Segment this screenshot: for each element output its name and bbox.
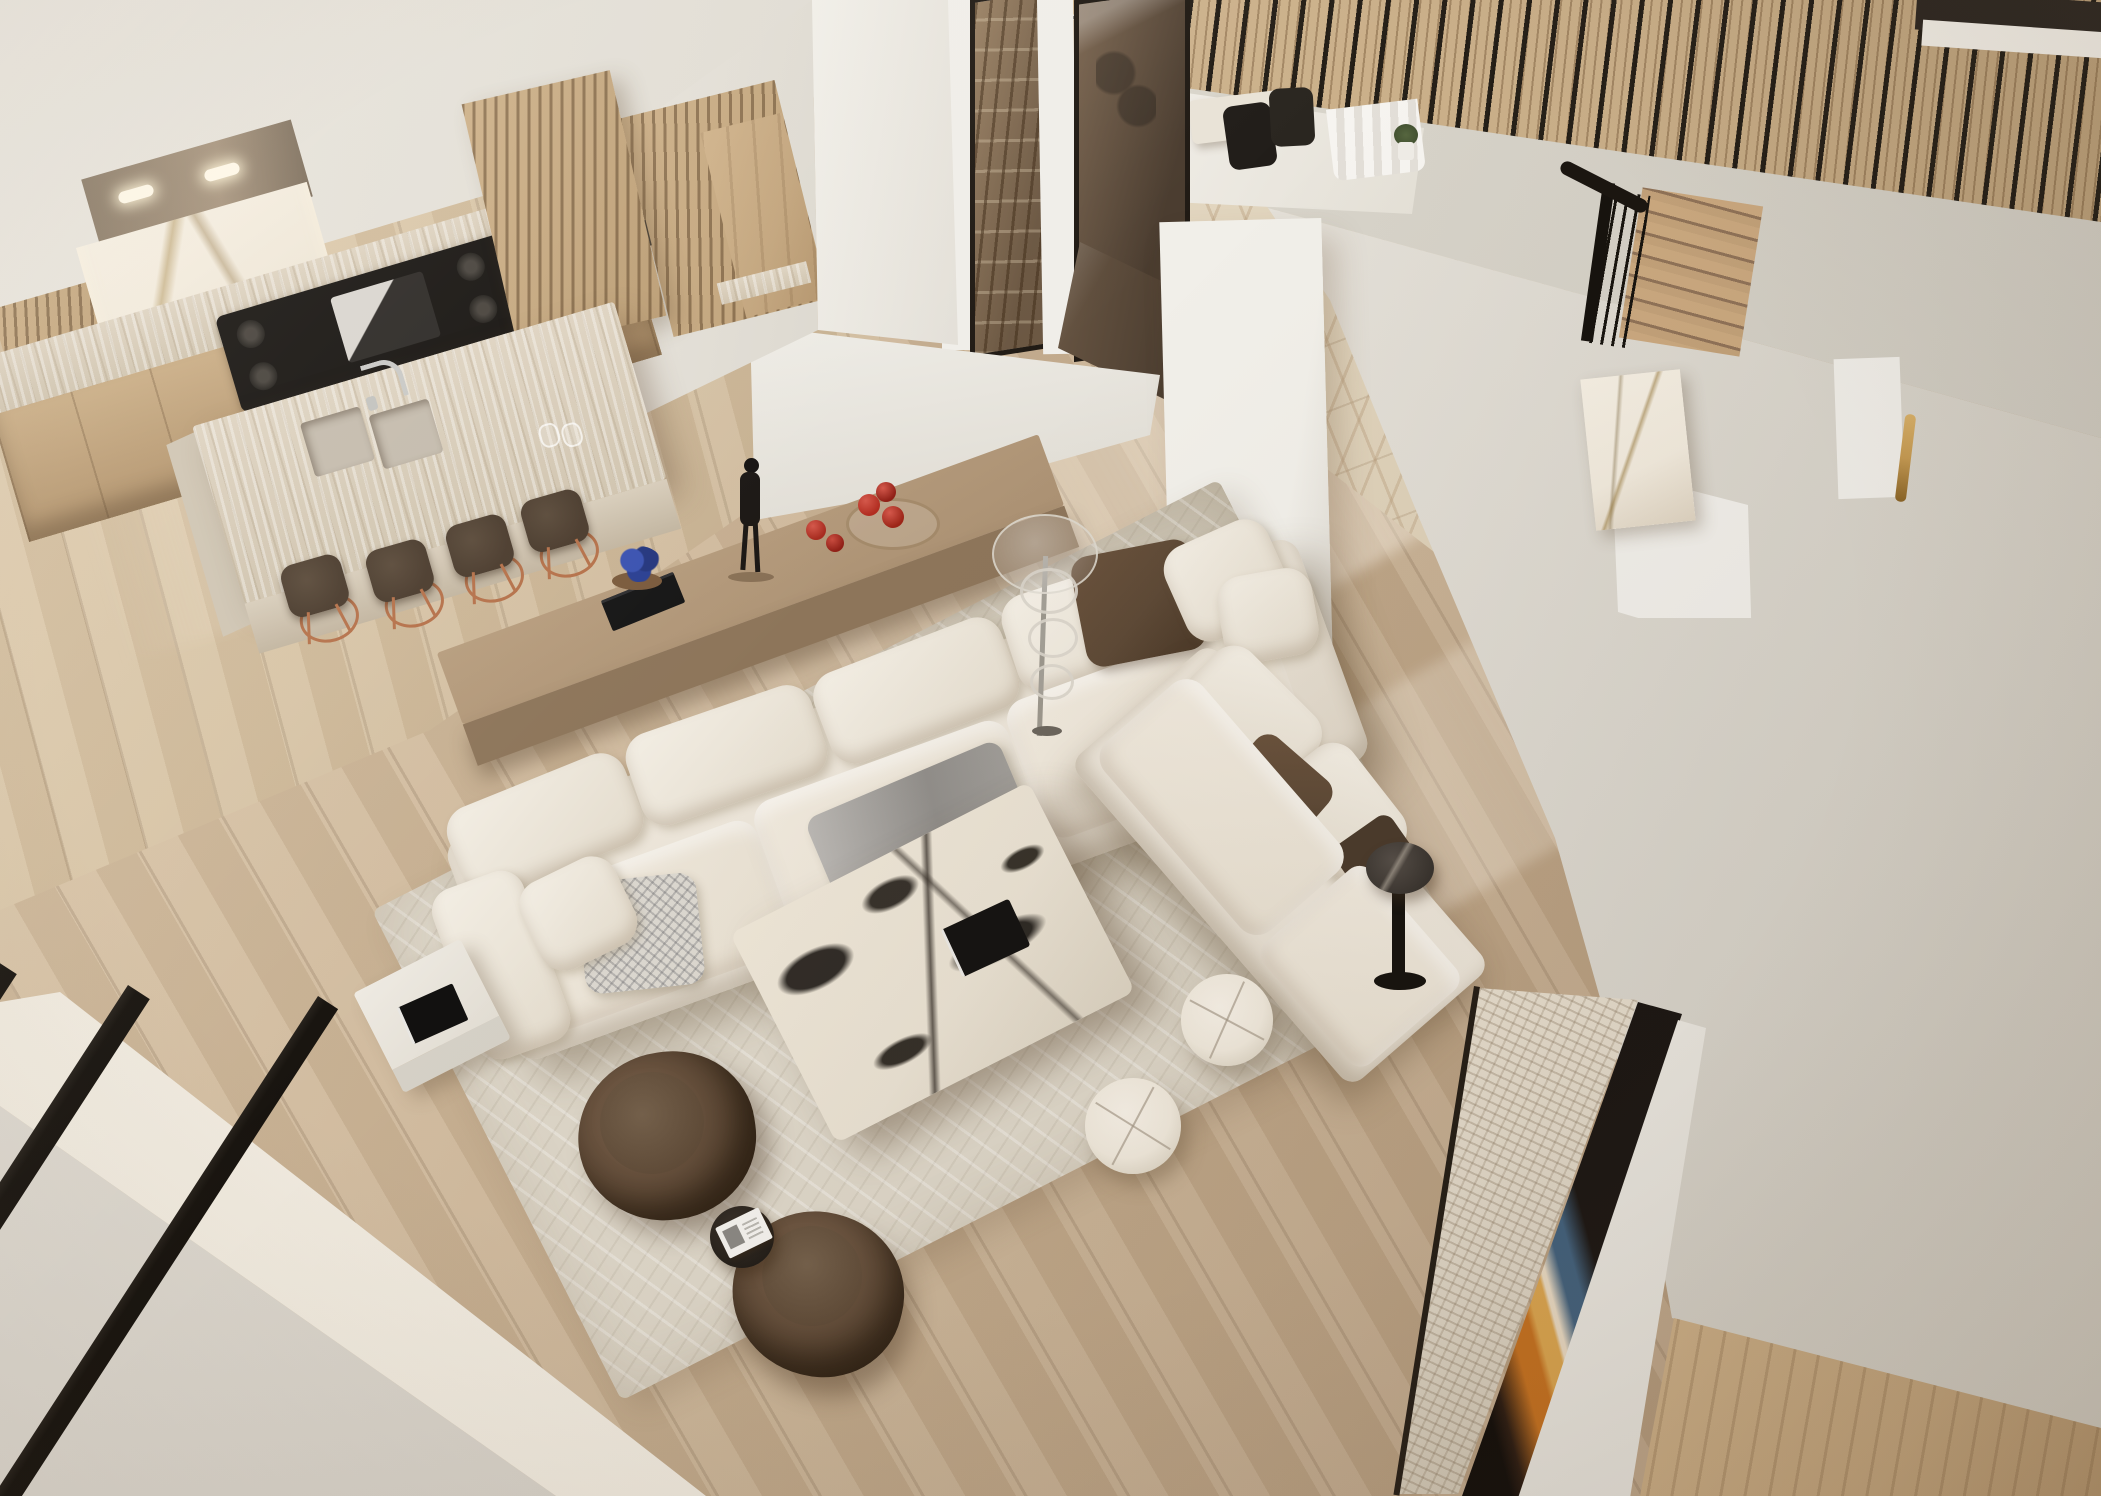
burner xyxy=(453,249,488,284)
figurine-leg xyxy=(740,522,748,570)
red-apple xyxy=(876,482,896,502)
red-apple xyxy=(882,506,904,528)
magazine-lines xyxy=(742,1217,764,1240)
blue-flowers xyxy=(616,546,662,582)
figurine-leg xyxy=(753,522,761,572)
right-doorway-pillar xyxy=(1834,357,1905,499)
figurine-sculpture xyxy=(728,458,774,588)
dining-chair xyxy=(1269,87,1316,147)
burner xyxy=(466,292,501,327)
figurine-head xyxy=(744,458,759,473)
burner xyxy=(233,317,268,352)
figurine-shadow xyxy=(728,572,774,582)
interior-render xyxy=(0,0,2101,1496)
red-apple xyxy=(826,534,844,552)
round-pouf xyxy=(1181,974,1273,1066)
round-marble-side-table-top xyxy=(1366,842,1434,894)
pouf-seam xyxy=(1189,999,1264,1040)
griddle-plate xyxy=(330,271,441,363)
kitchen-wall-face-front xyxy=(806,0,966,354)
magazine-photo xyxy=(722,1224,745,1249)
floor-lamp-base xyxy=(1032,726,1062,736)
wine-room-glass-reflection-chairs xyxy=(1096,40,1156,150)
burner xyxy=(246,359,281,394)
round-pouf xyxy=(1085,1078,1181,1174)
side-table-base xyxy=(1374,972,1426,990)
floor-lamp-glass-ring xyxy=(1028,618,1078,658)
plant-pot xyxy=(1398,142,1414,160)
pouf-seam xyxy=(1095,1102,1171,1150)
side-table-stem xyxy=(1392,886,1405,982)
red-apple xyxy=(902,492,923,513)
figurine-body xyxy=(740,472,760,526)
red-apple xyxy=(806,520,826,540)
floor-lamp-glass-ring xyxy=(1020,568,1078,614)
floor-lamp-glass-ring xyxy=(1030,664,1074,700)
marble-bar xyxy=(1580,369,1695,531)
barrel-chair xyxy=(567,1040,767,1231)
